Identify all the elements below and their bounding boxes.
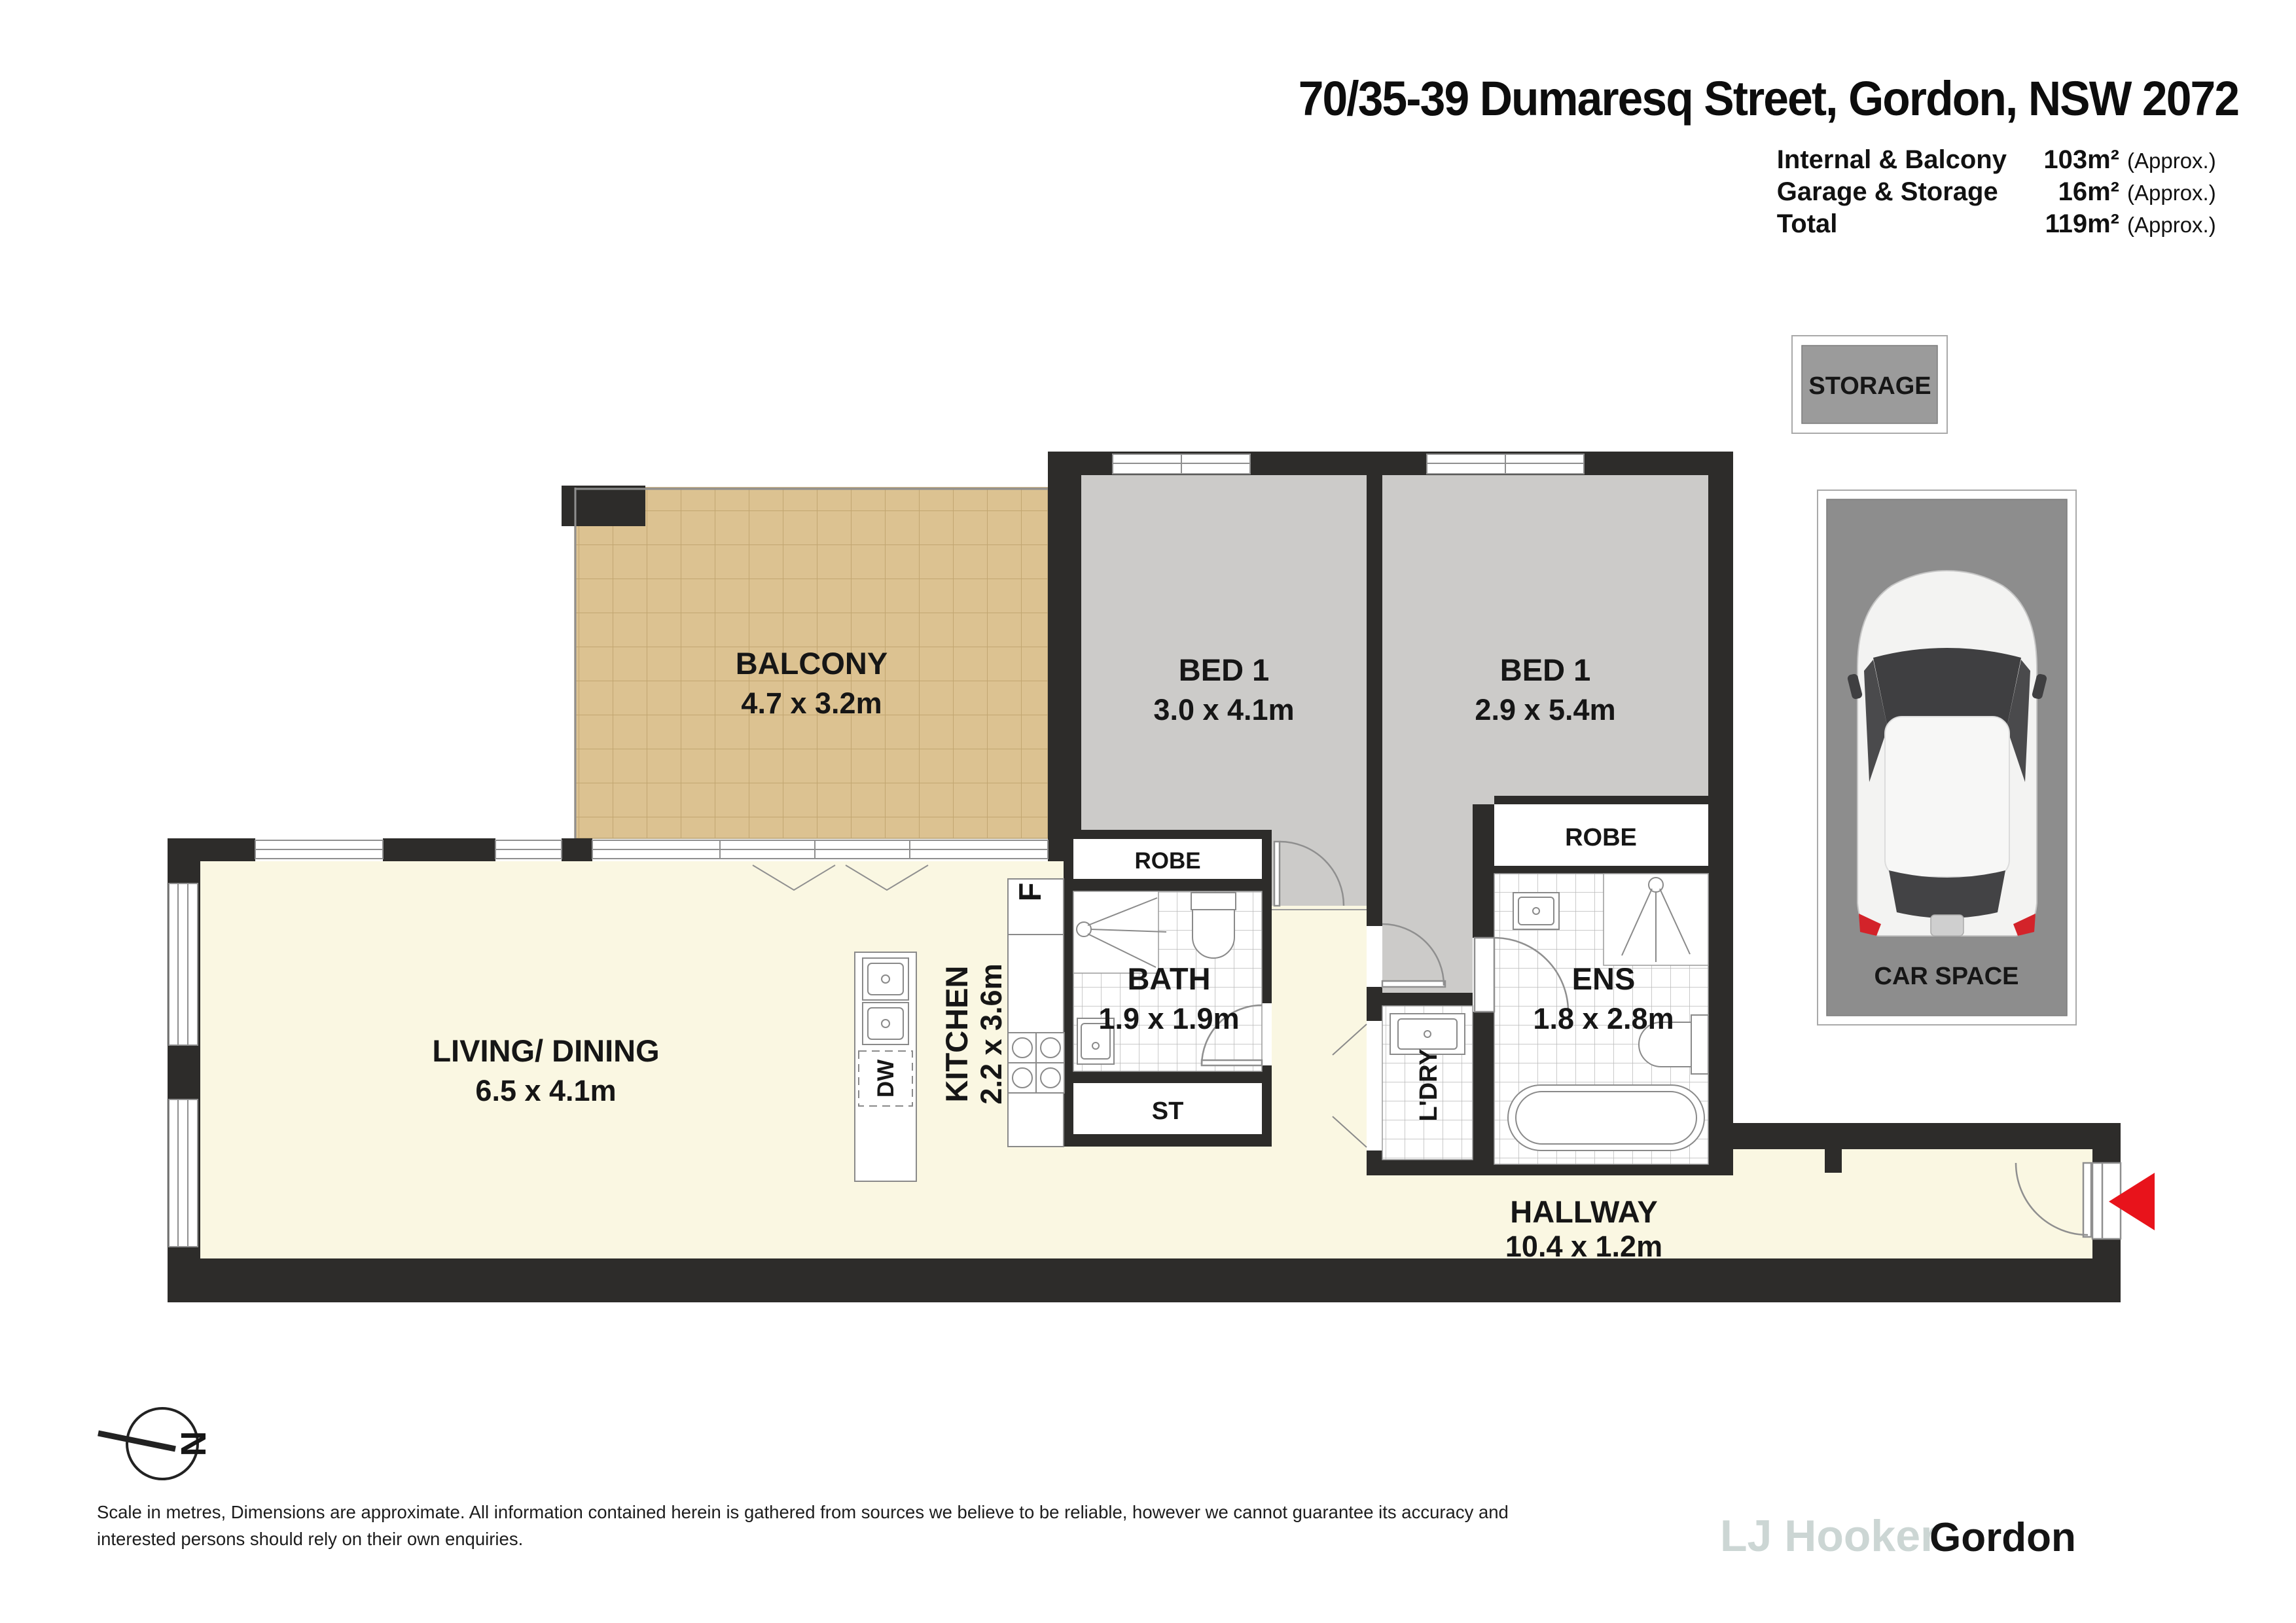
hall-floor-left xyxy=(1064,1147,1272,1258)
car-roof xyxy=(1885,717,2009,877)
bath-dims: 1.9 x 1.9m xyxy=(1098,1002,1239,1035)
st-label: ST xyxy=(1152,1097,1184,1125)
bed1-dims: 3.0 x 4.1m xyxy=(1153,693,1294,726)
toilet-bowl xyxy=(1193,910,1234,958)
hall-floor-right xyxy=(1733,1149,2092,1258)
dishwasher-label: DW xyxy=(873,1060,899,1097)
compass-north-label: N xyxy=(174,1431,213,1457)
laundry-label: L'DRY xyxy=(1415,1048,1443,1121)
bath-label: BATH xyxy=(1127,961,1210,996)
toilet-tank xyxy=(1191,893,1236,910)
car-windshield xyxy=(1873,648,2021,728)
car-space-label: CAR SPACE xyxy=(1874,963,2019,990)
compass-needle xyxy=(98,1433,175,1449)
bed2-door-leaf xyxy=(1382,981,1445,987)
kitchen-bench xyxy=(1008,879,1064,1147)
balcony-dims: 4.7 x 3.2m xyxy=(741,687,882,720)
bed2-label: BED 1 xyxy=(1500,652,1590,687)
hall-floor-mid xyxy=(1272,1175,1733,1258)
hallway-label: HALLWAY xyxy=(1510,1194,1657,1229)
hallway-dims: 10.4 x 1.2m xyxy=(1505,1230,1662,1263)
balcony-label: BALCONY xyxy=(736,646,888,681)
bed2-dims: 2.9 x 5.4m xyxy=(1475,693,1615,726)
bath-door-leaf xyxy=(1202,1060,1262,1065)
ens-dims: 1.8 x 2.8m xyxy=(1533,1002,1674,1035)
bed2-vestibule xyxy=(1382,804,1473,993)
bed1-door-leaf xyxy=(1274,842,1280,906)
garage-area: STORAGE CAR SPACE xyxy=(1792,336,2076,1025)
office-name: Gordon xyxy=(1929,1514,2076,1561)
ljhooker-logo: LJ Hooker xyxy=(1720,1510,1938,1561)
storage-label: STORAGE xyxy=(1808,372,1931,400)
disclaimer-line-1: Scale in metres, Dimensions are approxim… xyxy=(97,1499,1509,1525)
living-label: LIVING/ DINING xyxy=(432,1033,659,1068)
kitchen-dims: 2.2 x 3.6m xyxy=(975,963,1008,1104)
north-compass: N xyxy=(98,1408,213,1479)
ens-door-leaf xyxy=(1475,938,1494,1012)
fridge-label: F xyxy=(1013,883,1047,902)
floorplan-page: 70/35-39 Dumaresq Street, Gordon, NSW 20… xyxy=(0,0,2296,1623)
kitchen-label: KITCHEN xyxy=(939,966,974,1103)
entry-door-leaf xyxy=(2083,1163,2091,1237)
ens-label: ENS xyxy=(1572,961,1636,996)
bed1-label: BED 1 xyxy=(1179,652,1269,687)
robe1-label: ROBE xyxy=(1134,848,1200,874)
window-left-2 xyxy=(169,1099,198,1247)
floor-plan-drawing: BALCONY 4.7 x 3.2m BED 1 3.0 x 4.1m BED … xyxy=(0,0,2296,1623)
window-left-1 xyxy=(169,883,198,1045)
living-dims: 6.5 x 4.1m xyxy=(475,1074,616,1107)
disclaimer-text: Scale in metres, Dimensions are approxim… xyxy=(97,1499,1509,1552)
robe2-label: ROBE xyxy=(1565,824,1637,851)
car-top-view xyxy=(1847,571,2048,936)
disclaimer-line-2: interested persons should rely on their … xyxy=(97,1525,1509,1552)
bed2-floor xyxy=(1382,475,1708,804)
toilet-tank xyxy=(1691,1015,1708,1074)
